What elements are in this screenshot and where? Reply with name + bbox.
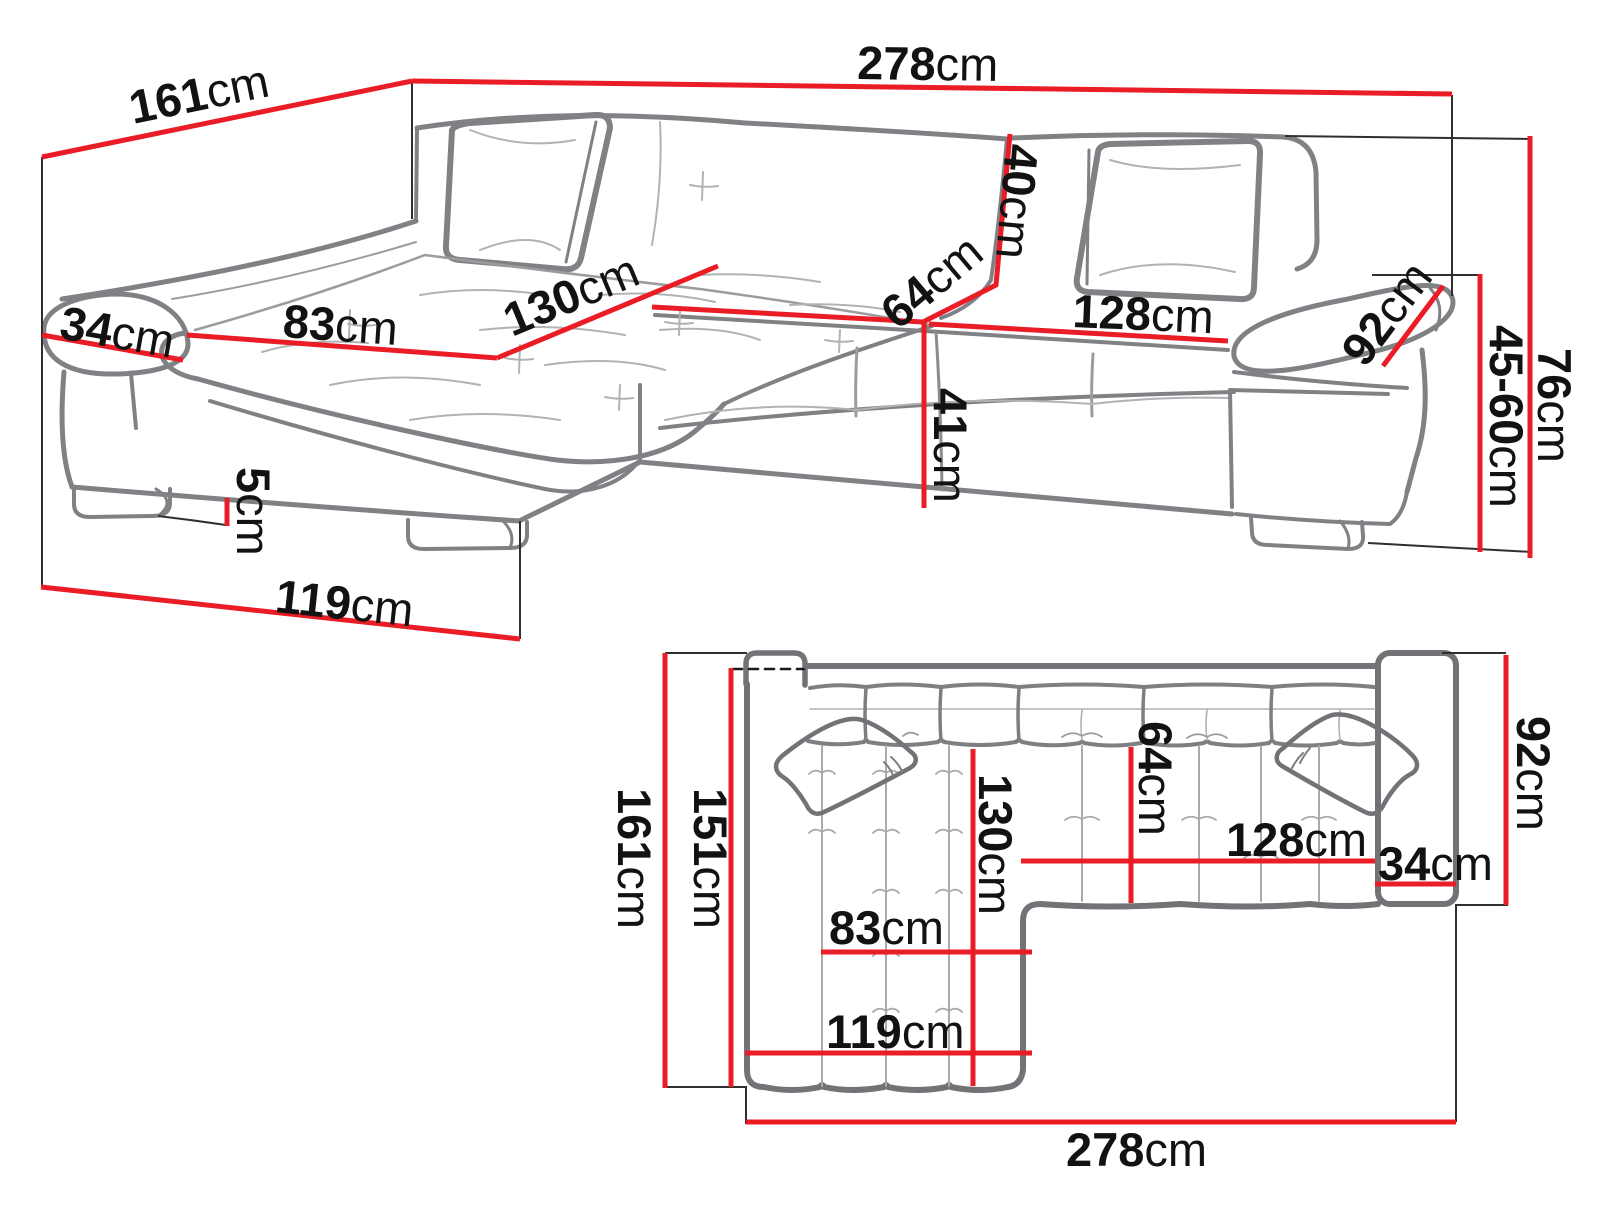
svg-text:130cm: 130cm [969,774,1022,915]
svg-text:161cm: 161cm [608,788,661,929]
svg-text:5cm: 5cm [227,467,280,556]
svg-text:41cm: 41cm [924,388,977,503]
svg-text:128cm: 128cm [1072,284,1215,343]
svg-text:92cm: 92cm [1507,716,1560,831]
svg-text:83cm: 83cm [829,901,944,954]
svg-text:76cm: 76cm [1528,348,1581,463]
svg-text:119cm: 119cm [826,1005,964,1058]
svg-text:151cm: 151cm [684,788,737,929]
svg-text:278cm: 278cm [1066,1123,1207,1176]
svg-text:128cm: 128cm [1226,813,1367,866]
svg-text:278cm: 278cm [857,36,999,91]
svg-text:64cm: 64cm [1129,721,1182,836]
svg-text:83cm: 83cm [281,294,399,355]
svg-text:34cm: 34cm [1378,837,1493,890]
svg-text:40cm: 40cm [986,142,1049,261]
svg-text:45-60cm: 45-60cm [1480,325,1533,508]
